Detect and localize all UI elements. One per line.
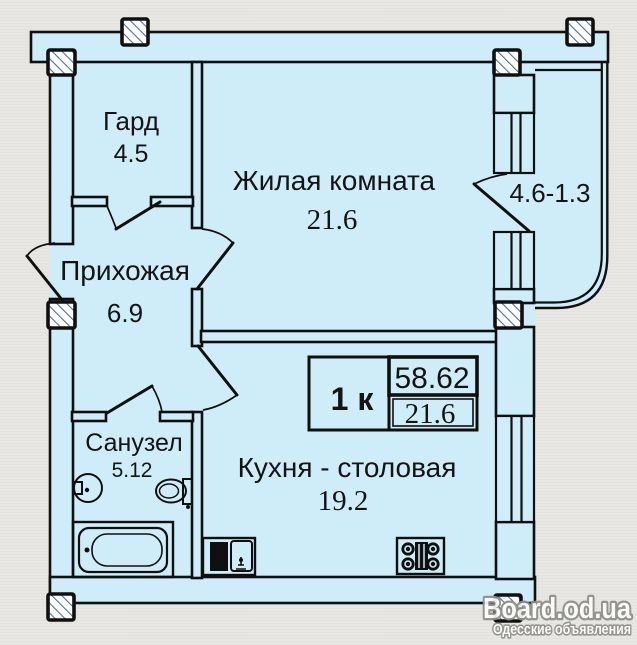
living-room-label: Жилая комната: [233, 165, 436, 196]
column-icon: [48, 594, 74, 620]
kitchen-label: Кухня - столовая: [238, 452, 457, 483]
column-icon: [495, 302, 522, 328]
apartment-type-label: 1 к: [331, 381, 375, 417]
total-area-value: 58.62: [394, 362, 469, 395]
column-icon: [567, 19, 593, 45]
wall-living-kitchen-divider: [201, 331, 497, 342]
column-icon: [48, 50, 75, 75]
living-room-window-lower: [494, 232, 534, 289]
column-icon: [48, 302, 75, 328]
wall-kitchen-right-lower: [496, 522, 534, 579]
wall-window-pier-upper: [494, 75, 534, 113]
watermark: Board.od.ua Одесские объявления: [483, 593, 632, 638]
kitchen-area: 19.2: [318, 485, 369, 517]
living-area-value: 21.6: [405, 398, 456, 430]
bathroom-area: 5.12: [112, 459, 153, 482]
hallway-area: 6.9: [107, 298, 143, 328]
balcony-dimensions: 4.6-1.3: [510, 178, 591, 208]
floor-plan-svg: 1 к 58.62 21.6 Гард 4.5 Жилая комната 21…: [0, 0, 637, 645]
bathroom-label: Санузел: [85, 429, 182, 457]
hallway-label: Прихожая: [60, 255, 190, 286]
wall-left-upper: [50, 62, 73, 244]
floor-plan: 1 к 58.62 21.6 Гард 4.5 Жилая комната 21…: [0, 0, 637, 645]
living-room-area: 21.6: [307, 204, 358, 236]
column-icon: [122, 19, 148, 45]
kitchen-window: [496, 416, 534, 522]
wall-bathroom-top-left: [72, 412, 106, 421]
wall-bottom: [50, 577, 535, 603]
wardrobe-area: 4.5: [114, 140, 149, 168]
wall-bathroom-top-right: [160, 412, 193, 421]
column-icon: [494, 50, 520, 75]
watermark-tagline: Одесские объявления: [493, 621, 631, 638]
wall-kitchen-right-upper: [496, 327, 534, 416]
wardrobe-label: Гард: [103, 106, 159, 136]
living-room-window-upper: [494, 113, 534, 173]
wall-left-lower: [50, 299, 73, 605]
wall-bathroom-right: [192, 412, 202, 578]
wall-wardrobe-bottom-left: [72, 197, 107, 206]
